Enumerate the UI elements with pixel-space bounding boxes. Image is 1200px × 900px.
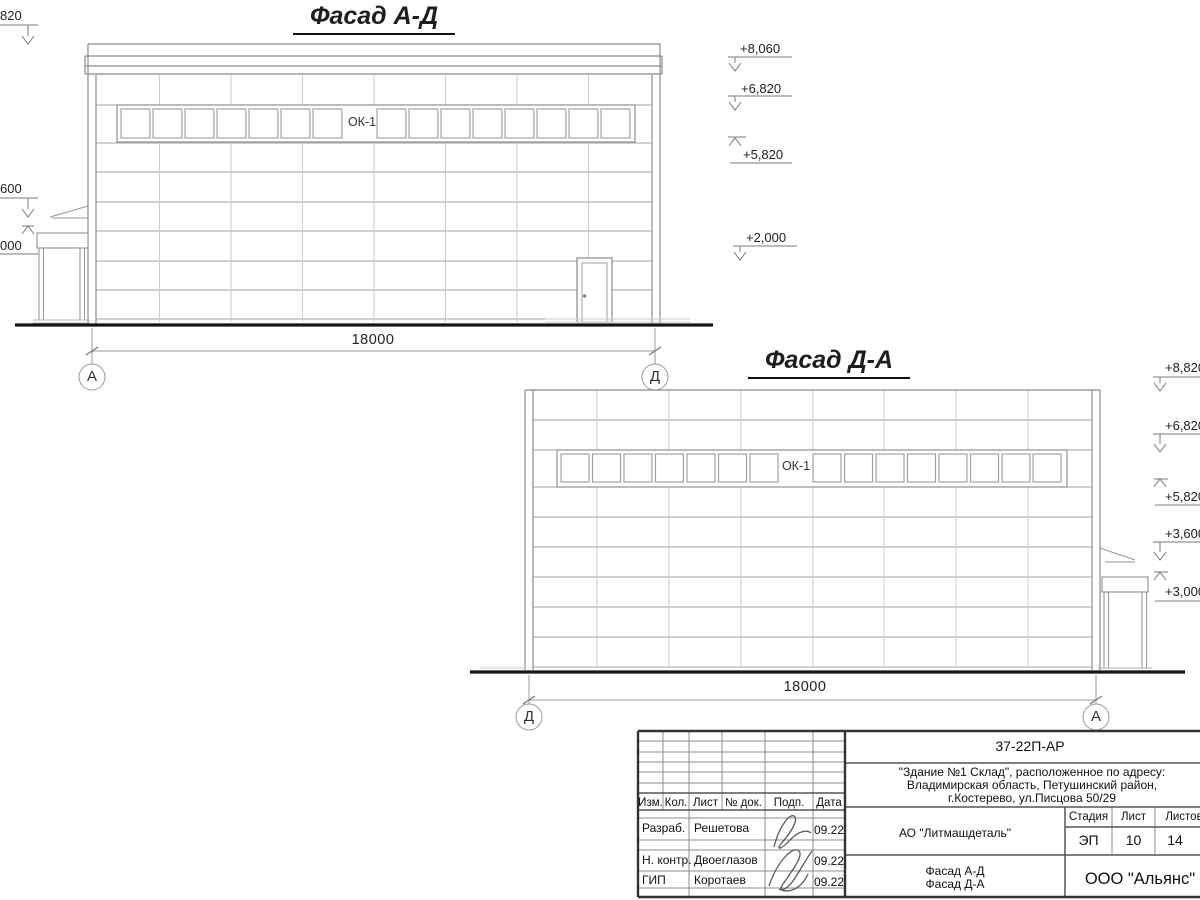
facade1-window-label: ОК-1 [342, 116, 382, 130]
facade1-title: Фасад А-Д [293, 3, 455, 35]
col-kol: Кол. [663, 797, 689, 810]
drawing-sheet: Фасад А-Д ОК-1 18000 А Д +8,060 +6,820 +… [0, 0, 1200, 900]
row-role-1: Н. контр. [642, 854, 692, 867]
facade1-mark-right-2: +5,820 [743, 148, 783, 162]
facade1-axis-d: Д [642, 369, 668, 386]
facade1-mark-right-0: +8,060 [740, 42, 780, 56]
facade1-mark-left-2: 000 [0, 239, 22, 253]
facade2-mark-right-4: +3,000 [1165, 585, 1200, 599]
design-org: ООО "Альянс" [1065, 870, 1200, 888]
customer-company: АО "Литмашдеталь" [845, 827, 1065, 840]
col-list: Лист [689, 797, 722, 810]
sheets-value: 14 [1150, 833, 1200, 848]
stage-value: ЭП [1065, 833, 1112, 848]
row-name-0: Решетова [694, 822, 749, 835]
row-date-0: 09.22 [814, 824, 844, 837]
facade2-axis-a: А [1083, 709, 1109, 726]
facade2-axis-d: Д [516, 709, 542, 726]
facade2-window-label: ОК-1 [776, 460, 816, 474]
facade1-dimension-text: 18000 [333, 333, 413, 349]
facade2-building [470, 377, 1200, 730]
facade1-axis-a: А [79, 369, 105, 386]
facade1-mark-left-0: 820 [0, 9, 22, 23]
sheet-title-line2: Фасад Д-А [845, 878, 1065, 891]
facade2-mark-right-0: +8,820 [1165, 361, 1200, 375]
row-role-0: Разраб. [642, 822, 685, 835]
facade2-mark-right-2: +5,820 [1165, 490, 1200, 504]
porch-left [33, 206, 90, 323]
facade2-mark-right-1: +6,820 [1165, 419, 1200, 433]
doc-number: 37-22П-АР [845, 739, 1200, 754]
signature [769, 816, 812, 891]
col-doc: № док. [722, 797, 765, 810]
facade2-mark-right-3: +3,600 [1165, 527, 1200, 541]
porch-right [480, 548, 1152, 671]
col-podp: Подп. [765, 797, 813, 810]
facade2-title: Фасад Д-А [748, 347, 910, 379]
stage-label: Стадия [1065, 811, 1112, 824]
col-data: Дата [813, 797, 845, 810]
object-address-line3: г.Костерево, ул.Писцова 50/29 [845, 792, 1200, 805]
row-name-1: Двоеглазов [694, 854, 758, 867]
facade1-mark-right-3: +2,000 [746, 231, 786, 245]
row-role-2: ГИП [642, 874, 666, 887]
sheet-label: Лист [1112, 811, 1155, 824]
elevation-arrows-left [0, 25, 38, 254]
col-izm: Изм. [638, 797, 663, 810]
facade2-dimension-text: 18000 [765, 680, 845, 696]
row-date-2: 09.22 [814, 876, 844, 889]
sheet-value: 10 [1112, 833, 1155, 848]
facade1-mark-right-1: +6,820 [741, 82, 781, 96]
row-date-1: 09.22 [814, 855, 844, 868]
sheets-label: Листов [1155, 811, 1200, 824]
row-name-2: Коротаев [694, 874, 746, 887]
facade1-mark-left-1: 600 [0, 182, 22, 196]
